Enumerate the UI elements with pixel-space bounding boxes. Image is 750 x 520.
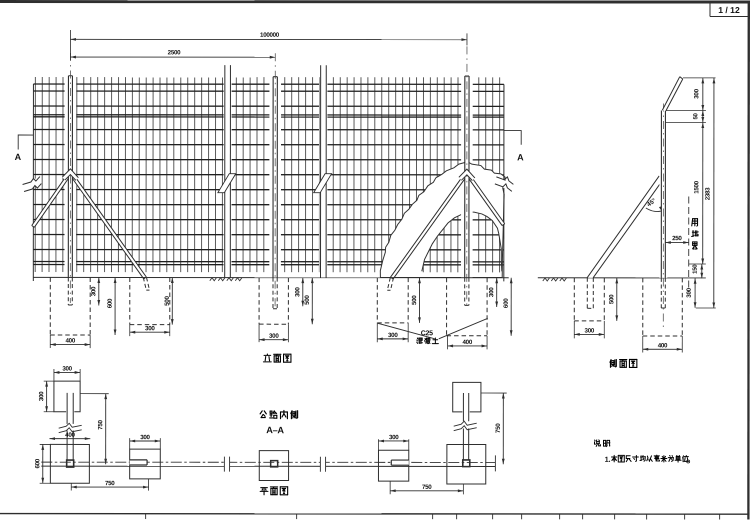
svg-text:150: 150 [693,264,699,274]
svg-text:600: 600 [503,298,510,308]
svg-text:300: 300 [269,333,279,340]
svg-text:300: 300 [90,286,97,296]
svg-text:500: 500 [411,295,418,305]
svg-text:1500: 1500 [693,180,700,193]
svg-text:300: 300 [388,332,398,339]
svg-text:400: 400 [463,339,473,346]
svg-text:300: 300 [140,434,150,441]
svg-text:1 / 12: 1 / 12 [718,5,740,15]
svg-text:300: 300 [693,88,700,98]
svg-text:750: 750 [97,420,104,430]
svg-text:300: 300 [488,287,495,297]
svg-text:2500: 2500 [168,49,181,56]
svg-text:300: 300 [585,328,595,335]
svg-text:A–A: A–A [266,425,284,435]
svg-text:300: 300 [38,391,45,401]
svg-text:100000: 100000 [260,32,280,39]
svg-text:300: 300 [145,325,155,332]
svg-text:400: 400 [65,432,75,439]
svg-text:600: 600 [34,458,41,468]
svg-text:400: 400 [66,338,76,345]
svg-text:A: A [15,152,22,162]
svg-text:250: 250 [672,235,682,242]
svg-text:750: 750 [422,484,432,491]
svg-text::: : [608,438,611,448]
svg-text:A: A [517,152,524,162]
svg-text:2383: 2383 [704,187,711,200]
svg-text:300: 300 [686,287,693,297]
svg-text:1.: 1. [605,455,611,464]
svg-text:50: 50 [693,112,699,119]
svg-text:600: 600 [107,298,114,308]
svg-text:300: 300 [294,287,301,297]
svg-text:500: 500 [608,294,615,304]
svg-text:750: 750 [105,480,115,487]
svg-text:500: 500 [304,295,311,305]
svg-text:C25: C25 [421,330,433,337]
svg-text:500: 500 [164,296,171,306]
svg-text:300: 300 [389,434,399,441]
svg-text:750: 750 [495,423,502,433]
svg-text:300: 300 [62,366,72,373]
svg-text:400: 400 [658,342,668,349]
